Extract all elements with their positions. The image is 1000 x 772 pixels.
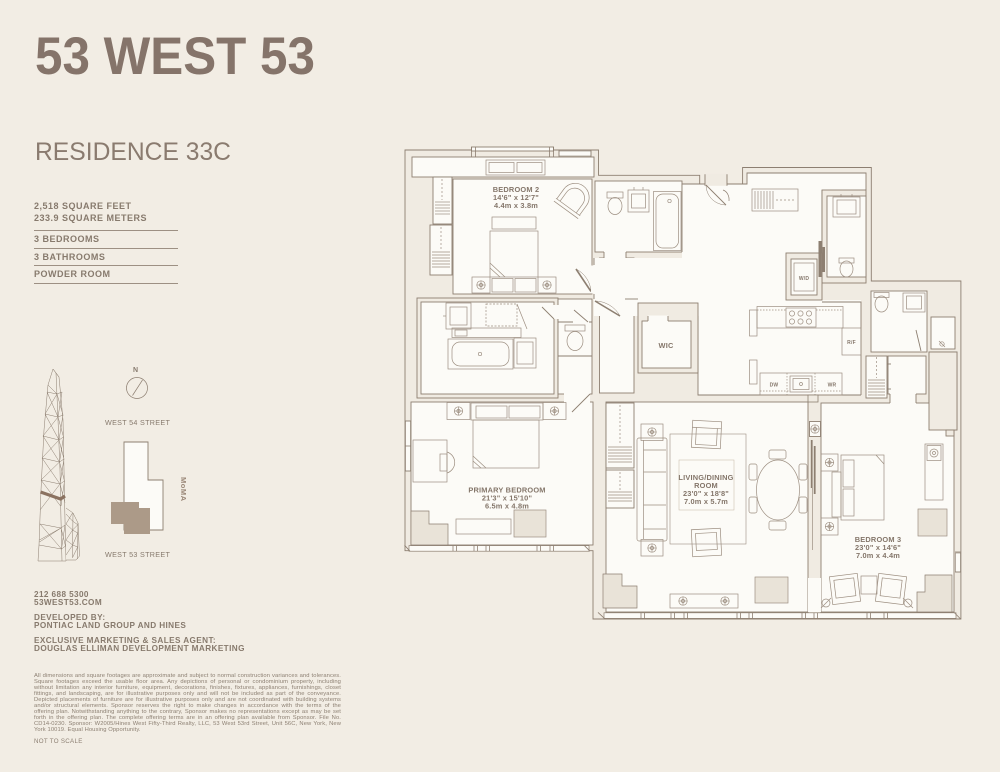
svg-text:6.5m x 4.8m: 6.5m x 4.8m: [485, 502, 529, 511]
svg-text:DW: DW: [770, 383, 779, 389]
svg-text:WR: WR: [828, 383, 837, 389]
svg-text:53 WEST 53: 53 WEST 53: [35, 27, 315, 86]
svg-text:7.0m x 4.4m: 7.0m x 4.4m: [856, 551, 900, 560]
svg-text:WIC: WIC: [659, 341, 674, 350]
svg-text:4.4m x 3.8m: 4.4m x 3.8m: [494, 201, 538, 210]
svg-text:RESIDENCE 33C: RESIDENCE 33C: [35, 138, 231, 166]
svg-text:7.0m x 5.7m: 7.0m x 5.7m: [684, 497, 728, 506]
svg-text:R/F: R/F: [847, 340, 856, 346]
svg-text:W/D: W/D: [799, 276, 810, 282]
